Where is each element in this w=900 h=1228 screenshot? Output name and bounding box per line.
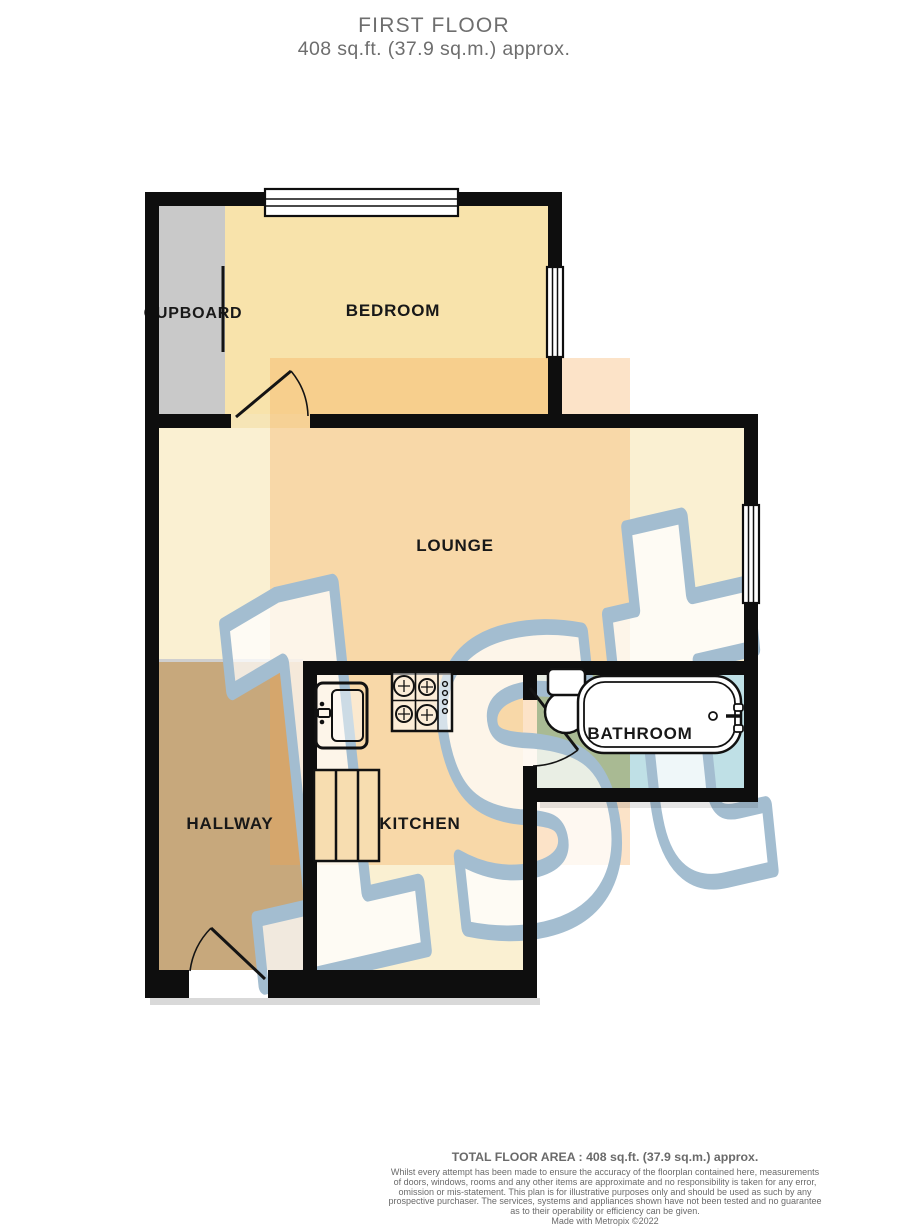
room-label-bathroom: BATHROOM bbox=[587, 724, 692, 743]
wall-bathroom-bottom bbox=[523, 788, 758, 802]
kitchen-cabinet bbox=[314, 770, 379, 861]
wall-bottom bbox=[268, 970, 537, 998]
wall-lounge-bottom bbox=[303, 661, 744, 675]
wall-bedroom-bottom bbox=[310, 414, 758, 428]
wall-cupboard-stub bbox=[145, 414, 231, 428]
wall-right bbox=[744, 414, 758, 802]
wall-bottom-left-stub bbox=[145, 970, 189, 998]
room-label-bedroom: BEDROOM bbox=[346, 301, 440, 320]
floorplan-canvas: 1st CUPBOARD bbox=[0, 0, 900, 1228]
room-label-lounge: LOUNGE bbox=[416, 536, 494, 555]
total-floor-area: TOTAL FLOOR AREA : 408 sq.ft. (37.9 sq.m… bbox=[370, 1150, 840, 1164]
stove-icon bbox=[392, 672, 452, 731]
wall-left bbox=[145, 192, 159, 998]
footer: TOTAL FLOOR AREA : 408 sq.ft. (37.9 sq.m… bbox=[370, 1150, 840, 1227]
room-label-hallway: HALLWAY bbox=[186, 814, 273, 833]
window-bedroom-top bbox=[265, 189, 458, 216]
window-bedroom-right bbox=[547, 267, 563, 357]
metropix-credit: Made with Metropix ©2022 bbox=[370, 1217, 840, 1227]
window-lounge-right bbox=[743, 505, 759, 603]
bottom-wall-shadow bbox=[150, 998, 540, 1005]
room-label-kitchen: KITCHEN bbox=[379, 814, 460, 833]
bathroom-wall-shadow bbox=[540, 802, 758, 808]
